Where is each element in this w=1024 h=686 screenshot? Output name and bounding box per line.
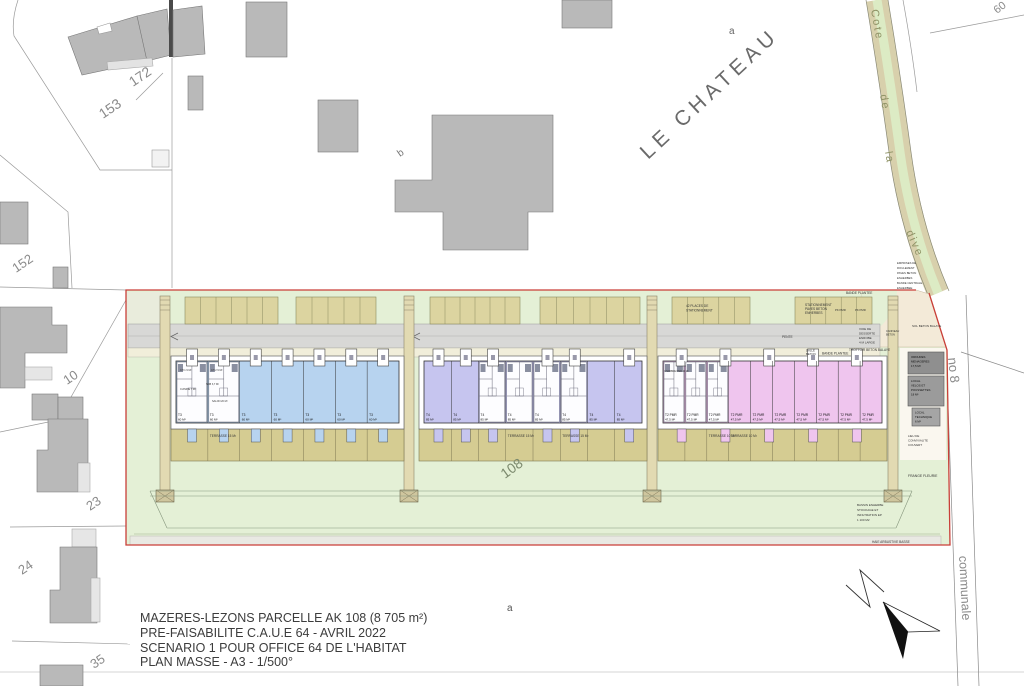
unit-type-label: T3 [242, 413, 246, 417]
north-arrow-icon [846, 570, 940, 659]
road-communale [946, 295, 1024, 686]
unit-type-label: T4 [617, 413, 621, 417]
parcel-label-152: 152 [9, 251, 35, 276]
unit-area-label: 47,5 M² [709, 418, 719, 422]
annotation-emprises-1: EMPRISES DE [897, 261, 916, 265]
title-line-3: SCENARIO 1 POUR OFFICE 64 DE L'HABITAT [140, 641, 407, 655]
unit-area-label: 85 M² [481, 418, 489, 422]
room-label-ch1: CH 1 9 M² [180, 369, 192, 372]
parcel-label-35: 35 [87, 651, 107, 672]
unit-type-label: T2 PMR [687, 413, 699, 417]
facility-velos-2: VELOS ET [911, 384, 925, 388]
unit-area-label: 60 M² [178, 418, 186, 422]
street-label-le-chateau: LE CHATEAU [636, 24, 784, 164]
housing-blocks: T360 M²T360 M²T360 M²T360 M²T360 M²T360 … [171, 349, 887, 461]
terrace-step [434, 429, 443, 442]
unit-area-label: 47,5 M² [840, 418, 850, 422]
parcel-label-24: 24 [15, 557, 35, 578]
parcel-sub-a-top: a [729, 26, 735, 37]
annotation-emprises-6: ENHERBEE [897, 286, 913, 290]
annotation-caniveau-2: BETON [886, 333, 895, 337]
parking-group [185, 297, 278, 324]
terrace-label: TERRASSE 15 M² [562, 434, 588, 438]
unit-area-label: 85 M² [617, 418, 625, 422]
annotation-frange: FRANGE FLEURIE [908, 474, 938, 478]
terrace-step [625, 429, 634, 442]
unit-type-label: T2 PMR [796, 413, 808, 417]
facility-technique-3: 6 M² [915, 420, 921, 424]
terrace-step [251, 429, 260, 442]
unit-type-label: T3 [369, 413, 373, 417]
annotation-emprises-2: ROULEMENT [897, 266, 915, 270]
unit-area-label: 47,5 M² [796, 418, 806, 422]
facility-convivialite-1: LIEU DE [908, 434, 919, 438]
unit-type-label: T2 PMR [731, 413, 743, 417]
annotation-haie: HAIE ARBUSTIVE BASSE [872, 540, 910, 544]
building-block-t4: T485 M²T485 M²T485 M²T485 M²T485 M²T485 … [419, 349, 647, 461]
unit-type-label: T4 [590, 413, 594, 417]
facility-velos-3: POUSSETTES [911, 388, 931, 392]
terrace-step [852, 429, 861, 442]
annotation-paves-3: ENHERBES [805, 311, 823, 315]
annotation-voie-2: DESSERTE [859, 332, 875, 336]
building-block-t2-pmr: T2 PMR47,5 M²T2 PMR47,5 M²T2 PMR47,5 M²T… [658, 349, 887, 461]
parcel-label-10: 10 [60, 367, 80, 388]
parcel-sub-b: b [395, 147, 406, 159]
parking-group [540, 297, 640, 324]
unit-area-label: 60 M² [274, 418, 282, 422]
facility-technique-1: LOCAL [915, 411, 925, 415]
terrace-step [461, 429, 470, 442]
unit-area-label: 47,5 M² [687, 418, 697, 422]
terrace-step [543, 429, 552, 442]
unit-type-label: T2 PMR [753, 413, 765, 417]
terrace-label: TERRASSE 15 M² [508, 434, 534, 438]
annotation-voie-1: VOIE DE [859, 327, 871, 331]
unit-type-label: T4 [426, 413, 430, 417]
room-label-chambre-pmr: CHAMBRE PMR 11 M² [664, 370, 689, 373]
title-block: MAZERES-LEZONS PARCELLE AK 108 (8 705 m²… [140, 611, 427, 669]
plan-masse-drawing: T360 M²T360 M²T360 M²T360 M²T360 M²T360 … [0, 0, 1024, 686]
unit-type-label: T4 [453, 413, 457, 417]
unit-area-label: 47,5 M² [665, 418, 675, 422]
annotation-places-2: STATIONNEMENT [686, 309, 713, 313]
annotation-voie-4: 4 M LARGE [859, 341, 875, 345]
room-label-salon: SALON 20 M² [212, 400, 228, 403]
facility-velos-4: 18 M² [911, 393, 918, 397]
annotation-emprises-5: BANDE CENTRALE [897, 281, 922, 285]
annotation-bassin-1: BASSIN ENHERBE [857, 503, 883, 507]
unit-type-label: T3 [274, 413, 278, 417]
street-label-communale: communale [956, 555, 973, 620]
parking-group [430, 297, 520, 324]
terrace-step [488, 429, 497, 442]
unit-type-label: T3 [210, 413, 214, 417]
annotation-emprises-4: ENHERBES [897, 276, 913, 280]
facility-velos-1: LOCAL [911, 379, 921, 383]
street-label-la: la [882, 150, 896, 164]
unit-type-label: T2 PMR [818, 413, 830, 417]
title-line-4: PLAN MASSE - A3 - 1/500° [140, 655, 293, 669]
annotation-caniveau-1: CANIVEAU [886, 329, 899, 333]
room-label-ch2: CH 2 9 M² [211, 369, 223, 372]
terrace-step [347, 429, 356, 442]
annotation-bande-plantee-top: BANDE PLANTEE [846, 291, 872, 295]
unit-area-label: 85 M² [562, 418, 570, 422]
annotation-pk-pmr-1: PK PMR [835, 308, 846, 312]
facility-convivialite-3: COUVERT [908, 443, 922, 447]
unit-area-label: 47,5 M² [775, 418, 785, 422]
annotation-sol-beton: SOL BETON BALAYE [912, 324, 941, 328]
unit-area-label: 60 M² [210, 418, 218, 422]
parcel-label-60: 60 [992, 0, 1009, 16]
hedge-strip [130, 536, 941, 545]
unit-type-label: T2 PMR [862, 413, 874, 417]
annotation-trottoir: TROTTOIR BETON BALAYE [849, 348, 890, 352]
unit-type-label: T4 [481, 413, 485, 417]
unit-area-label: 60 M² [305, 418, 313, 422]
unit-area-label: 60 M² [242, 418, 250, 422]
terrace-step [379, 429, 388, 442]
unit-area-label: 47,5 M² [753, 418, 763, 422]
terrace-step [188, 429, 197, 442]
title-line-1: MAZERES-LEZONS PARCELLE AK 108 (8 705 m²… [140, 611, 427, 625]
unit-type-label: T3 [305, 413, 309, 417]
annotation-bassin-2: STOCKAGE ET [857, 508, 878, 512]
unit-type-label: T4 [562, 413, 566, 417]
room-label-cuisine: CUISINE 7 M² [180, 388, 196, 391]
annotation-emprises-3: PAVES BETON [897, 271, 916, 275]
chateau-building [395, 115, 553, 250]
terrace-step [315, 429, 324, 442]
street-label-de: de [877, 93, 892, 111]
room-label-sdb: SDB 3,7 M² [206, 383, 219, 386]
terrace-step [283, 429, 292, 442]
unit-type-label: T4 [508, 413, 512, 417]
annotation-voie-3: ENROBE [859, 336, 872, 340]
facility-convivialite-2: CONVIVIALITE [908, 439, 928, 443]
unit-type-label: T2 PMR [840, 413, 852, 417]
parking-group [296, 297, 376, 324]
terrace-step [765, 429, 774, 442]
terrace-label: TERRASSE 15 M² [210, 434, 236, 438]
unit-area-label: 47,5 M² [862, 418, 872, 422]
unit-type-label: T4 [535, 413, 539, 417]
title-line-2: PRE-FAISABILITE C.A.U.E 64 - AVRIL 2022 [140, 626, 386, 640]
street-label-no8: no 8 [945, 357, 963, 384]
site-plan-canvas: T360 M²T360 M²T360 M²T360 M²T360 M²T360 … [0, 0, 1024, 686]
unit-type-label: T3 [178, 413, 182, 417]
unit-area-label: 85 M² [508, 418, 516, 422]
unit-type-label: T3 [337, 413, 341, 417]
terrace-step [809, 429, 818, 442]
facility-technique-2: TECHNIQUE [915, 415, 932, 419]
unit-type-label: T2 PMR [709, 413, 721, 417]
annotation-dalle-2: BETON [806, 352, 816, 356]
annotation-bande-plantee-mid: BANDE PLANTEE [822, 352, 848, 356]
building-block-t3: T360 M²T360 M²T360 M²T360 M²T360 M²T360 … [171, 349, 404, 461]
annotation-bassin-4: 1 100 M2 [857, 518, 870, 522]
facility-ordures-1: ORDURES [911, 355, 926, 359]
unit-area-label: 47,5 M² [731, 418, 741, 422]
unit-area-label: 85 M² [535, 418, 543, 422]
annotation-pk-pmr-2: PK PMR [855, 308, 866, 312]
unit-type-label: T2 PMR [775, 413, 787, 417]
unit-area-label: 85 M² [426, 418, 434, 422]
unit-area-label: 60 M² [337, 418, 345, 422]
parcel-sub-a-bottom: a [507, 603, 513, 614]
terrace-step [677, 429, 686, 442]
facility-ordures-3: 17,5 M² [911, 364, 921, 368]
parcel-label-23: 23 [83, 493, 103, 514]
unit-area-label: 85 M² [590, 418, 598, 422]
terrace-label: TERRASSE 10 M² [731, 434, 757, 438]
road-cote-de-la-dive [866, 0, 949, 295]
unit-type-label: T2 PMR [665, 413, 677, 417]
facility-ordures-2: MENAGERES [911, 360, 930, 364]
annotation-places-1: 42 PLACES DE [686, 304, 708, 308]
unit-area-label: 85 M² [453, 418, 461, 422]
parcel-label-153: 153 [96, 95, 124, 121]
unit-area-label: 47,5 M² [818, 418, 828, 422]
annotation-pente: PENTE [782, 335, 793, 339]
annotation-bassin-3: INFILTRATION EP [857, 513, 882, 517]
unit-area-label: 60 M² [369, 418, 377, 422]
